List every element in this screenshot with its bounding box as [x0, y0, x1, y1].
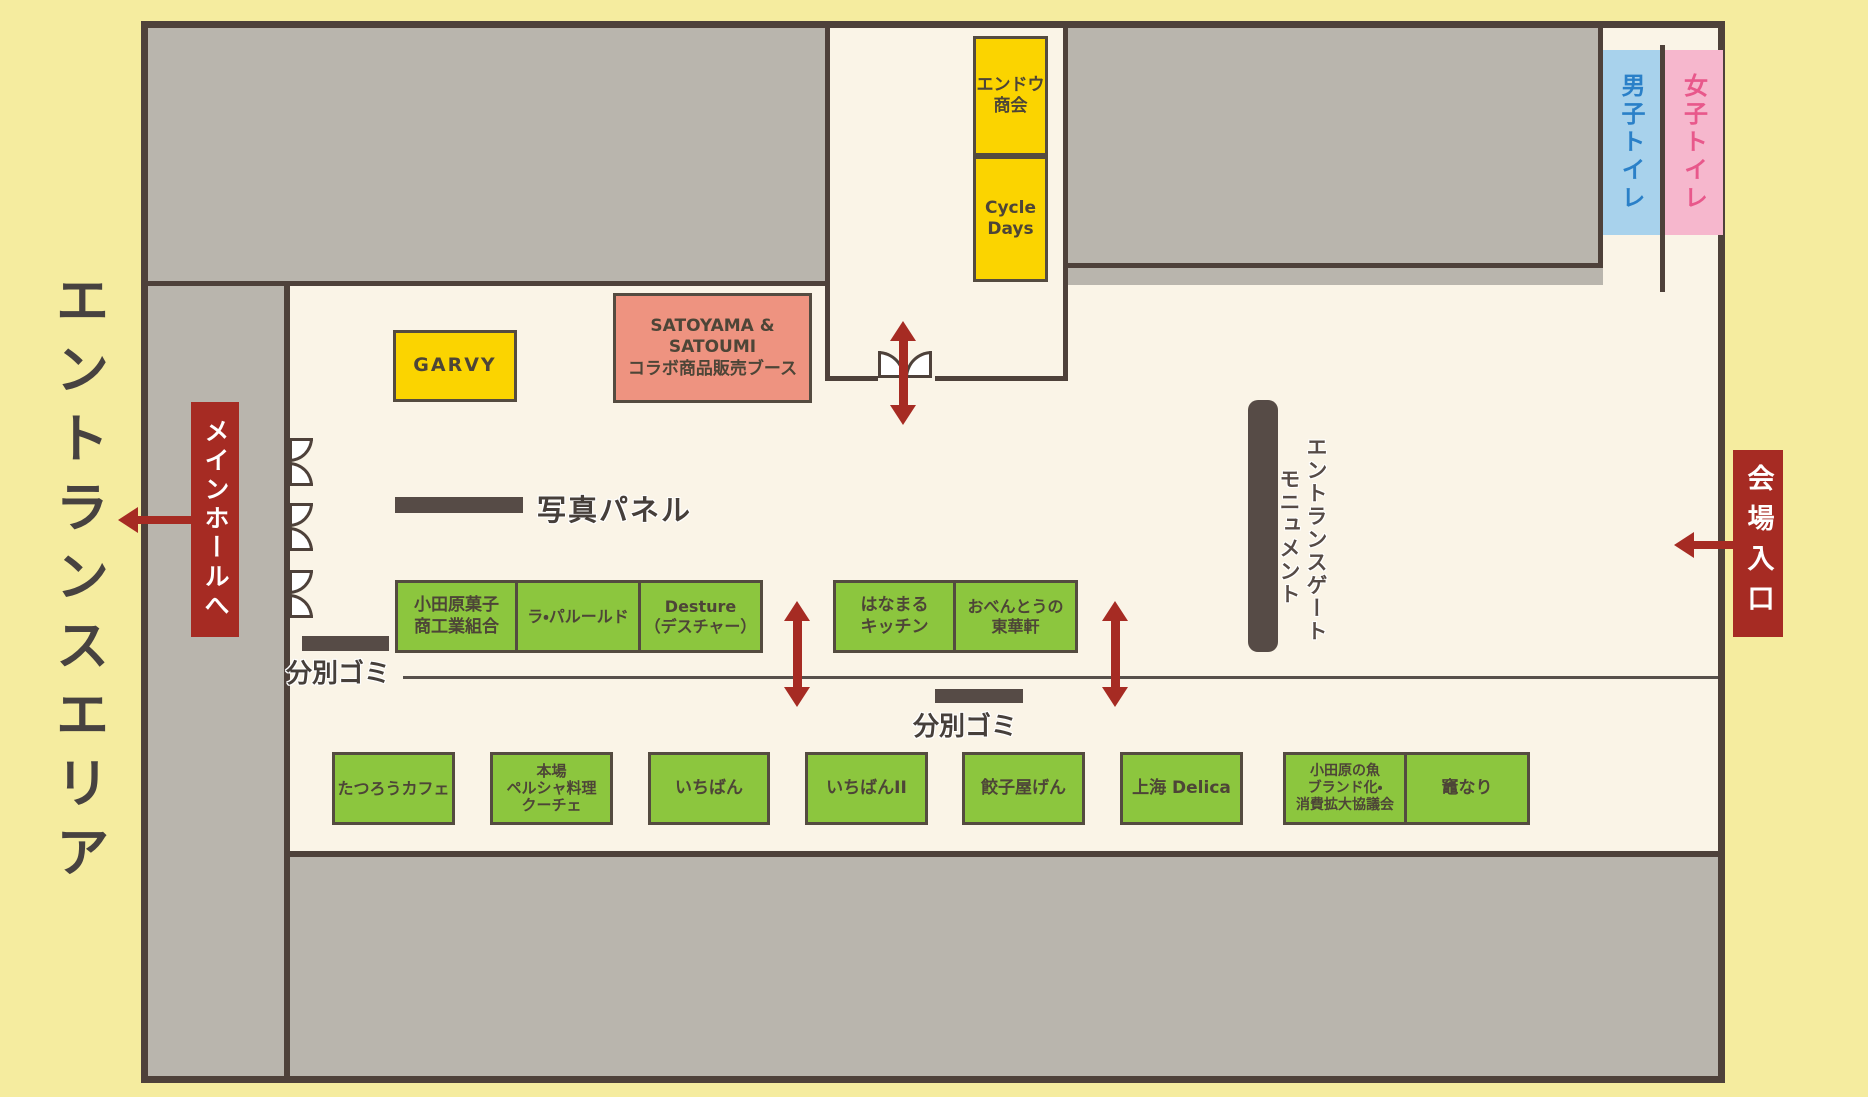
booth-ichiban: いちばん	[648, 752, 770, 825]
booth-cycle-days: Cycle Days	[973, 156, 1048, 282]
booth-endou-shokai: エンドウ 商会	[973, 36, 1048, 156]
booth-persian-cuisine: 本場 ペルシャ料理 クーチェ	[490, 752, 613, 825]
booth-hanamaru-kitchen: はなまる キッチン	[833, 580, 956, 653]
main-hall-badge: メインホールへ	[191, 402, 239, 637]
photo-panel-bar	[395, 497, 523, 513]
monument-label-line2: モニュメント	[1274, 468, 1304, 606]
map-frame	[141, 21, 1725, 1083]
booth-la-parourude: ラ・パルールド	[515, 580, 641, 653]
trash-label-1: 分別ゴミ	[286, 653, 390, 690]
booth-desture: Desture （デスチャー）	[638, 580, 763, 653]
booth-satoyama-satoumi: SATOYAMA & SATOUMI コラボ商品販売ブース	[613, 293, 812, 403]
venue-entrance-arrow-icon	[1693, 541, 1734, 549]
booth-odawara-fish: 小田原の魚 ブランド化・ 消費拡大協議会	[1283, 752, 1407, 825]
booth-ichiban-2: いちばんII	[805, 752, 928, 825]
trash-bar-2	[935, 689, 1023, 703]
main-hall-arrow-icon	[137, 516, 192, 524]
photo-panel-label: 写真パネル	[537, 487, 692, 529]
area-title: エントランスエリア	[38, 272, 117, 893]
floor-map: エントランスエリア メインホールへ 会場入口 男子トイレ 女子トイレ エンドウ …	[0, 0, 1868, 1097]
two-way-arrow-icon	[899, 340, 908, 406]
mens-toilet: 男子トイレ	[1603, 50, 1660, 235]
trash-label-2: 分別ゴミ	[913, 706, 1017, 743]
booth-gyoza-gen: 餃子屋げん	[962, 752, 1085, 825]
booth-odawara-confectionery: 小田原菓子 商工業組合	[395, 580, 518, 653]
two-way-arrow-icon	[793, 620, 802, 688]
two-way-arrow-icon	[1111, 620, 1120, 688]
womens-toilet: 女子トイレ	[1665, 50, 1723, 235]
booth-shanghai-delica: 上海 Delica	[1120, 752, 1243, 825]
monument-label-line1: エントランスゲート	[1301, 436, 1331, 643]
venue-entrance-badge: 会場入口	[1733, 450, 1783, 637]
booth-tatsuro-cafe: たつろうカフェ	[332, 752, 455, 825]
trash-bar-1	[302, 636, 389, 651]
booth-toukaken: おべんとうの 東華軒	[953, 580, 1078, 653]
booth-kamanari: 竈なり	[1404, 752, 1530, 825]
booth-garvy: GARVY	[393, 330, 517, 402]
